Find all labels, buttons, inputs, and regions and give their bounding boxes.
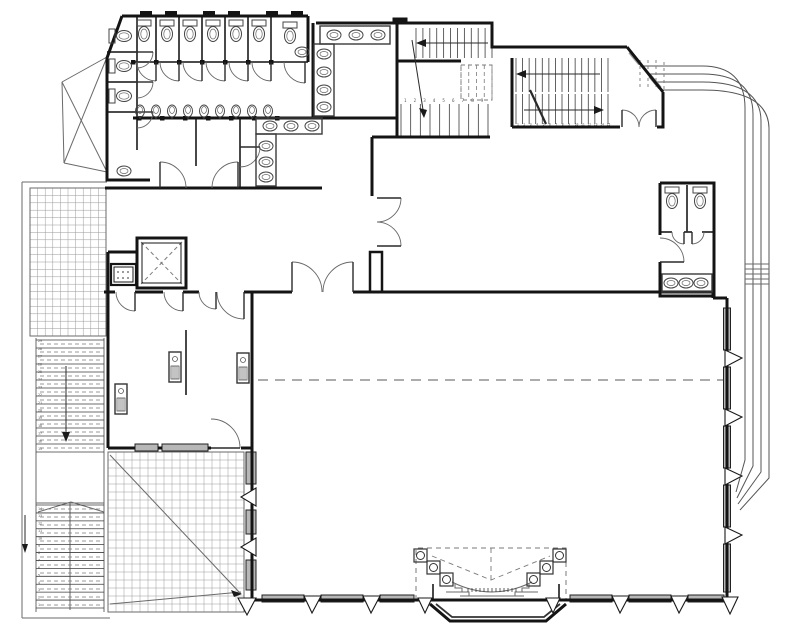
dashed-lines-layer — [141, 60, 724, 600]
stair-tread-number: 2 — [523, 123, 525, 127]
window-sill-layer — [135, 308, 731, 602]
plan-rect — [393, 18, 407, 24]
equipment-dot — [117, 271, 119, 273]
stair-tread-number: 4 — [433, 98, 436, 103]
equipment-dot — [127, 271, 129, 273]
wall-jamb — [165, 11, 177, 16]
equipment-dot — [122, 271, 124, 273]
floor-plan-svg: 1234567891234567891011121314151516171819… — [0, 0, 800, 640]
bay-arrow — [241, 488, 256, 506]
bay-arrow — [722, 597, 738, 614]
sink-fixture — [371, 30, 385, 40]
bay-arrow — [671, 596, 688, 613]
toilet-fixture — [109, 89, 115, 103]
sink-fixture — [317, 85, 331, 95]
sink-fixture — [305, 121, 319, 131]
bay-arrow — [241, 538, 256, 556]
stair-tread-number: 13 — [594, 123, 598, 127]
plan-rect — [114, 267, 133, 282]
bay-arrow — [725, 350, 742, 367]
stair-tread-number: 22 — [38, 393, 42, 397]
stair-tread-number: 17 — [38, 432, 42, 436]
stair-tread-number: 9 — [481, 98, 484, 103]
stair-tread-number: 9 — [38, 544, 40, 548]
stair-tread-number: 6 — [452, 98, 455, 103]
bay-arrow — [725, 409, 742, 426]
stair-tread-number: 18 — [38, 424, 42, 428]
sink-counter — [320, 26, 390, 44]
stair-tread-number: 20 — [38, 409, 42, 413]
stair-tread-number: 19 — [38, 416, 42, 420]
sink-fixture — [317, 102, 331, 112]
toilet-fixture — [283, 22, 297, 28]
sink-counter — [662, 274, 712, 292]
wall-jamb — [266, 11, 278, 16]
sink-fixture — [263, 121, 277, 131]
stair-tread-number: 11 — [581, 123, 585, 127]
stair-tread-number: 24 — [38, 378, 42, 382]
stair-tread-number: 5 — [38, 573, 40, 577]
stair-tread-number: 4 — [536, 123, 538, 127]
window-sill — [162, 444, 208, 451]
stair-tread-number: 1 — [38, 603, 40, 607]
equipment-dot — [117, 277, 119, 279]
stair-tread-number: 2 — [414, 98, 417, 103]
sink-fixture — [259, 157, 273, 167]
stage-column — [540, 561, 553, 574]
walls-layer — [104, 16, 727, 621]
stair-tread-number: 8 — [562, 123, 564, 127]
wall-jamb — [291, 11, 303, 16]
stair-tread-number: 16 — [38, 439, 42, 443]
toilet-fixture — [665, 187, 679, 193]
wall-jamb — [229, 116, 234, 121]
stair-tread-number: 3 — [530, 123, 532, 127]
stair-tread-number: 3 — [423, 98, 426, 103]
wall-jamb — [206, 116, 211, 121]
stair-tread-number: 11 — [38, 529, 42, 533]
equipment-dot — [122, 277, 124, 279]
thin-linework-layer — [22, 57, 769, 618]
wall-jamb — [140, 11, 152, 16]
direction-arrowhead — [516, 70, 526, 78]
sink-fixture — [327, 30, 341, 40]
stair-tread-number: 23 — [38, 385, 42, 389]
wall-jamb — [203, 11, 215, 16]
toilet-fixture — [160, 20, 174, 26]
sink-fixture — [694, 278, 708, 288]
sink-fixture — [664, 278, 678, 288]
toilet-fixture — [229, 20, 243, 26]
sink-fixture — [259, 141, 273, 151]
stair-tread-number: 6 — [38, 566, 40, 570]
toilet-fixture — [137, 20, 151, 26]
toilet-fixture — [109, 59, 115, 73]
wall-jamb — [131, 60, 136, 65]
arrows-layer — [22, 39, 742, 615]
stair-tread-number: 9 — [568, 123, 570, 127]
bay-arrow — [725, 527, 742, 544]
stage-column — [553, 549, 566, 562]
stair-tread-number: 1 — [404, 98, 407, 103]
window-sill — [135, 444, 158, 451]
stair-tread-number: 7 — [38, 559, 40, 563]
wall-jamb — [160, 116, 165, 121]
stair-tread-number: 8 — [471, 98, 474, 103]
stage-column — [440, 573, 453, 586]
stair-tread-number: 3 — [38, 588, 40, 592]
bay-arrow — [363, 596, 380, 613]
stair-tread-number: 15 — [607, 123, 611, 127]
stair-tread-number: 27 — [38, 355, 42, 359]
stairs-layer — [36, 28, 608, 608]
stair-tread-number: 7 — [555, 123, 557, 127]
stair-tread-number: 4 — [38, 581, 40, 585]
stair-tread-number: 12 — [38, 522, 42, 526]
direction-arrowhead — [594, 106, 604, 114]
wall-jamb — [228, 11, 240, 16]
toilet-fixture — [252, 20, 266, 26]
stair-tread-number: 25 — [38, 370, 42, 374]
sink-fixture — [679, 278, 693, 288]
stair-tread-number: 12 — [587, 123, 591, 127]
stair-tread-number: 21 — [38, 401, 42, 405]
bay-arrow — [304, 596, 321, 613]
bay-arrow — [612, 596, 629, 613]
stage-column — [427, 561, 440, 574]
doors-layer — [116, 52, 704, 448]
stair-tread-number: 5 — [442, 98, 445, 103]
stair-tread-number: 14 — [600, 123, 604, 127]
sink-fixture — [349, 30, 363, 40]
direction-arrowhead — [416, 39, 426, 47]
stair-tread-number: 8 — [38, 551, 40, 555]
stair-tread-number: 28 — [38, 347, 42, 351]
stair-tread-number: 15 — [38, 447, 42, 451]
equipment-dot — [127, 277, 129, 279]
toilet-fixture — [206, 20, 220, 26]
stair-tread-number: 7 — [462, 98, 465, 103]
floor-plan-canvas: 1234567891234567891011121314151516171819… — [0, 0, 800, 640]
stair-tread-number: 10 — [38, 536, 42, 540]
toilet-fixture — [183, 20, 197, 26]
stair-tread-number: 13 — [38, 514, 42, 518]
sink-fixture — [259, 172, 273, 182]
direction-arrowhead — [22, 544, 28, 553]
stair-tread-number: 14 — [38, 507, 42, 511]
plan-rect — [370, 252, 382, 292]
direction-arrowhead — [62, 432, 70, 442]
toilet-fixture — [693, 187, 707, 193]
sink-fixture — [284, 121, 298, 131]
stair-tread-number: 6 — [549, 123, 551, 127]
stair-tread-number: 26 — [38, 362, 42, 366]
stair-tread-number: 29 — [38, 339, 42, 343]
bay-arrow — [725, 468, 742, 485]
stair-tread-number: 10 — [575, 123, 579, 127]
sink-fixture — [317, 49, 331, 59]
floor-drain — [117, 166, 131, 176]
stair-tread-number: 2 — [38, 596, 40, 600]
stair-tread-number: 5 — [543, 123, 545, 127]
sink-fixture — [317, 67, 331, 77]
stair-tread-number: 1 — [517, 123, 519, 127]
